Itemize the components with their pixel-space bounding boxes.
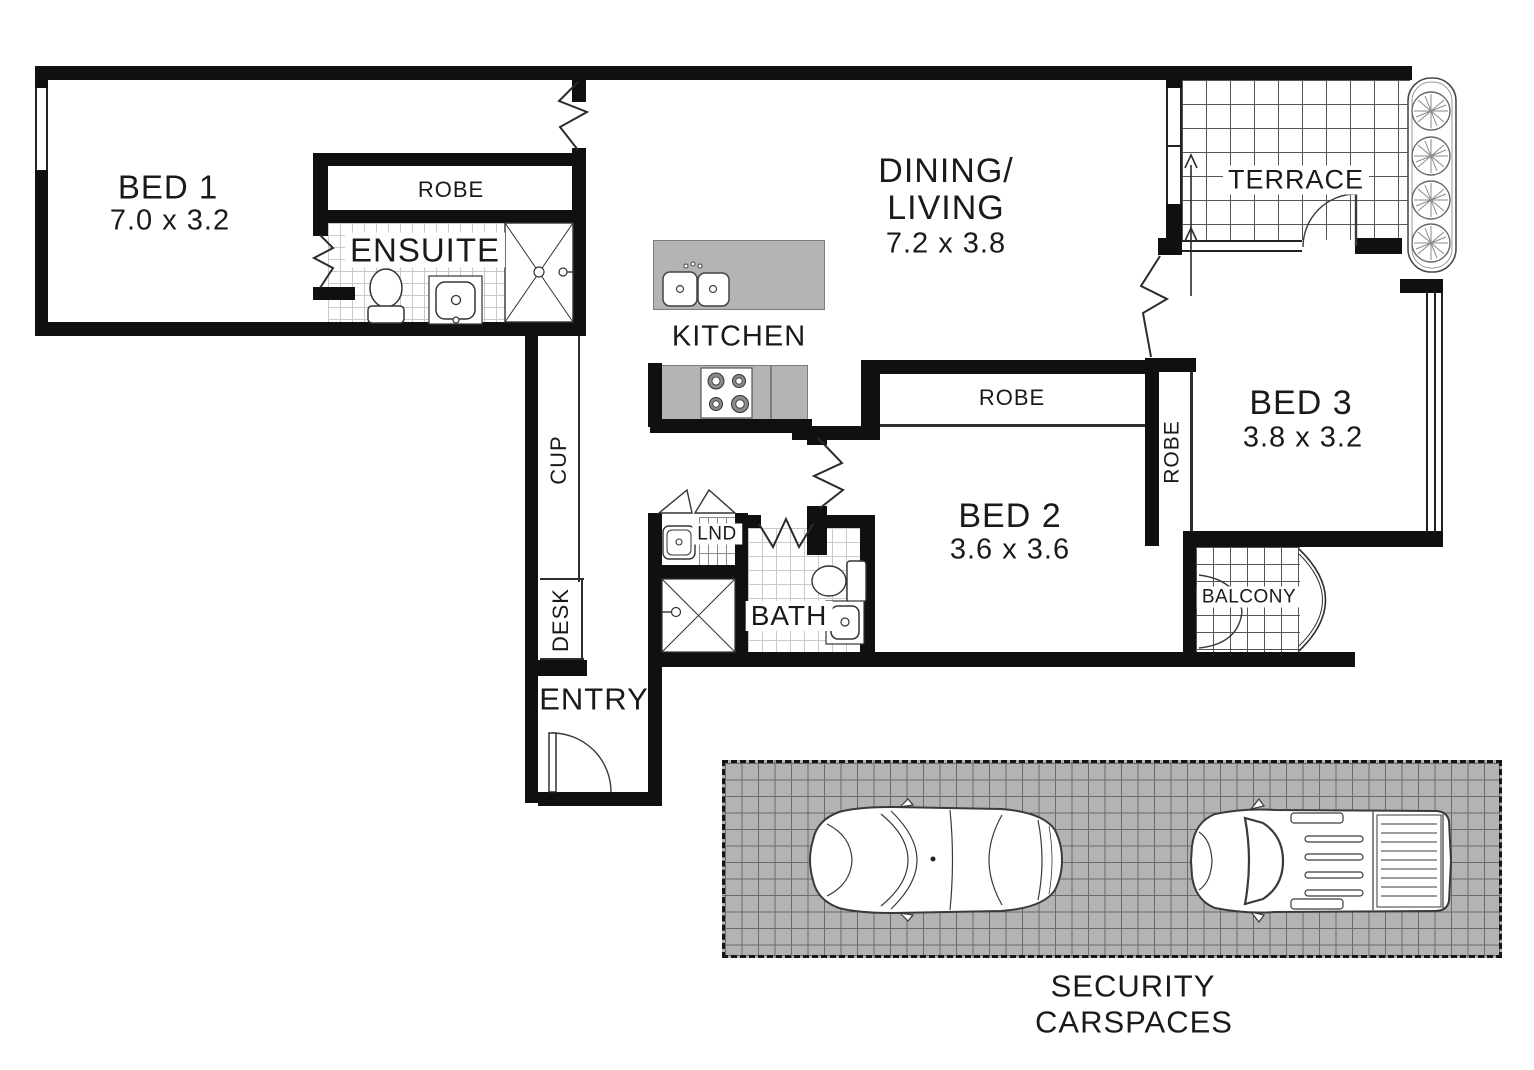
wall-robe3-top bbox=[1145, 358, 1196, 372]
wall-balcony-left bbox=[1183, 546, 1196, 653]
bed1-dimensions: 7.0 x 3.2 bbox=[110, 207, 230, 236]
laundry-bifold-doors bbox=[659, 490, 735, 513]
carspace-area bbox=[722, 760, 1502, 958]
bed3-right-window bbox=[1426, 293, 1443, 531]
wall-bed2-door-stub-bottom bbox=[807, 506, 827, 555]
robe3-label: ROBE bbox=[1162, 420, 1183, 484]
dining-label-line2: LIVING bbox=[887, 191, 1004, 225]
cupboard-label: CUP bbox=[548, 435, 570, 484]
wall-ensuite-right bbox=[572, 148, 586, 336]
bed3-dimensions: 3.8 x 3.2 bbox=[1243, 424, 1363, 453]
kitchen-counter-divider bbox=[770, 366, 772, 420]
entry-label: ENTRY bbox=[539, 684, 649, 715]
wall-bath-top-left bbox=[741, 515, 761, 528]
balcony-curved-edge bbox=[1299, 549, 1326, 651]
wall-bed3-bottom bbox=[1183, 531, 1443, 547]
wall-bed1-divider bbox=[313, 166, 328, 236]
wall-terrace-cap-bottomright bbox=[1355, 238, 1402, 254]
bed2-dimensions: 3.6 x 3.6 bbox=[950, 536, 1070, 565]
bed1-window bbox=[35, 88, 48, 170]
bed3-window-mullion bbox=[1434, 293, 1436, 531]
bed1-label: BED 1 bbox=[118, 171, 218, 204]
wall-bottom-long bbox=[648, 652, 1355, 667]
bath-label: BATH bbox=[746, 601, 833, 631]
ensuite-shower-icon bbox=[505, 223, 573, 322]
wall-corridor-left bbox=[525, 336, 538, 803]
ensuite-label: ENSUITE bbox=[345, 233, 505, 268]
terrace-left-window bbox=[1166, 88, 1182, 204]
wall-bed2-door-stub-top bbox=[807, 433, 827, 445]
wall-terrace-cap-bottomleft bbox=[1158, 238, 1182, 255]
wall-laundry-bottom bbox=[648, 565, 748, 579]
wall-entry-bottom bbox=[538, 792, 662, 806]
wall-robe2-top bbox=[861, 360, 1145, 374]
wall-robe1-top bbox=[313, 153, 586, 166]
bed2-label: BED 2 bbox=[958, 499, 1061, 533]
robe1-label: ROBE bbox=[418, 179, 484, 201]
bed3-label: BED 3 bbox=[1249, 386, 1352, 420]
robe2-front-line bbox=[880, 424, 1145, 427]
wall-desk-stub bbox=[538, 660, 587, 676]
desk-outline-top bbox=[540, 578, 584, 580]
wall-counter-cap bbox=[648, 363, 662, 427]
kitchen-label: KITCHEN bbox=[672, 323, 806, 352]
wall-robe3-left bbox=[1145, 358, 1159, 546]
bath-floor-tiles bbox=[748, 528, 861, 653]
terrace-floor-tiles bbox=[1182, 80, 1410, 240]
entry-door bbox=[549, 733, 611, 792]
laundry-label: LND bbox=[692, 524, 742, 545]
balcony-label: BALCONY bbox=[1197, 587, 1301, 608]
wall-ensuite-right-upper bbox=[572, 80, 586, 102]
robe3-front-line bbox=[1190, 372, 1193, 531]
bath-shower-icon bbox=[662, 579, 735, 652]
terrace-planter bbox=[1408, 78, 1456, 272]
carspaces-label-line1: SECURITY bbox=[1051, 971, 1216, 1002]
break-line-dining-bed3 bbox=[1141, 256, 1167, 357]
wall-ensuite-stub bbox=[313, 287, 355, 300]
wall-bed3-cap-topright bbox=[1400, 279, 1443, 293]
cupboard-front-line bbox=[578, 336, 580, 582]
break-line-bed2-door bbox=[814, 438, 843, 508]
dining-dimensions: 7.2 x 3.8 bbox=[886, 230, 1006, 259]
kitchen-counter bbox=[660, 365, 808, 421]
wall-bed1-bottom bbox=[35, 322, 586, 336]
kitchen-island-bench bbox=[653, 240, 825, 310]
wall-robe1-bottom bbox=[313, 210, 586, 223]
desk-outline-right bbox=[581, 578, 583, 660]
terrace-bottom-window bbox=[1182, 240, 1302, 252]
terrace-label: TERRACE bbox=[1223, 166, 1369, 195]
wall-terrace-cap-topleft bbox=[1166, 77, 1182, 88]
wall-under-counter bbox=[650, 419, 812, 433]
carspaces-label-line2: CARSPACES bbox=[1035, 1007, 1233, 1038]
laundry-tub-icon bbox=[663, 526, 695, 559]
terrace-window-mullion bbox=[1168, 145, 1180, 147]
wall-bath-right bbox=[860, 515, 875, 654]
dining-label-line1: DINING/ bbox=[878, 154, 1013, 188]
desk-label: DESK bbox=[550, 588, 572, 652]
wall-top bbox=[35, 66, 1412, 80]
floor-plan: BED 1 7.0 x 3.2 ROBE ENSUITE DINING/ LIV… bbox=[0, 0, 1534, 1070]
robe2-label: ROBE bbox=[979, 387, 1045, 409]
